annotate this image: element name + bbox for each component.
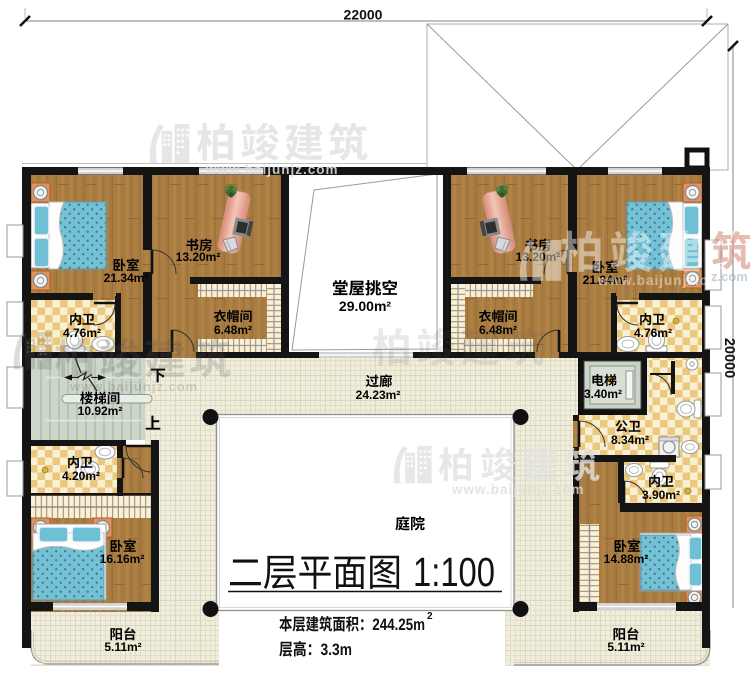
svg-text:2: 2 bbox=[427, 611, 433, 622]
svg-text:4.76m²: 4.76m² bbox=[63, 326, 101, 340]
svg-text:1:100: 1:100 bbox=[413, 549, 495, 595]
svg-text:4.76m²: 4.76m² bbox=[634, 326, 672, 340]
svg-text:16.16m²: 16.16m² bbox=[100, 552, 145, 566]
svg-text:z.com: z.com bbox=[711, 269, 748, 284]
svg-text:5.11m²: 5.11m² bbox=[104, 640, 141, 654]
svg-text:www.baijunjz.com: www.baijunjz.com bbox=[205, 162, 339, 177]
svg-text:21.34m²: 21.34m² bbox=[104, 271, 149, 285]
svg-text:24.23m²: 24.23m² bbox=[356, 388, 401, 402]
svg-text:4.20m²: 4.20m² bbox=[62, 469, 100, 483]
svg-text:13.20m²: 13.20m² bbox=[176, 250, 221, 264]
svg-text:14.88m²: 14.88m² bbox=[604, 552, 649, 566]
svg-text:22000: 22000 bbox=[344, 7, 383, 23]
svg-text:3.40m²: 3.40m² bbox=[584, 387, 622, 401]
svg-text:10.92m²: 10.92m² bbox=[78, 404, 123, 418]
svg-text:29.00m²: 29.00m² bbox=[339, 298, 391, 314]
svg-text:3.90m²: 3.90m² bbox=[642, 488, 680, 502]
svg-text:8.34m²: 8.34m² bbox=[611, 433, 649, 447]
svg-text:www.baijunjz.com: www.baijunjz.com bbox=[451, 482, 585, 497]
svg-text:20000: 20000 bbox=[721, 338, 737, 378]
svg-text:6.48m²: 6.48m² bbox=[214, 323, 252, 337]
svg-text:5.11m²: 5.11m² bbox=[607, 640, 644, 654]
svg-text:www.baijunjz.com: www.baijunjz.com bbox=[69, 379, 198, 394]
